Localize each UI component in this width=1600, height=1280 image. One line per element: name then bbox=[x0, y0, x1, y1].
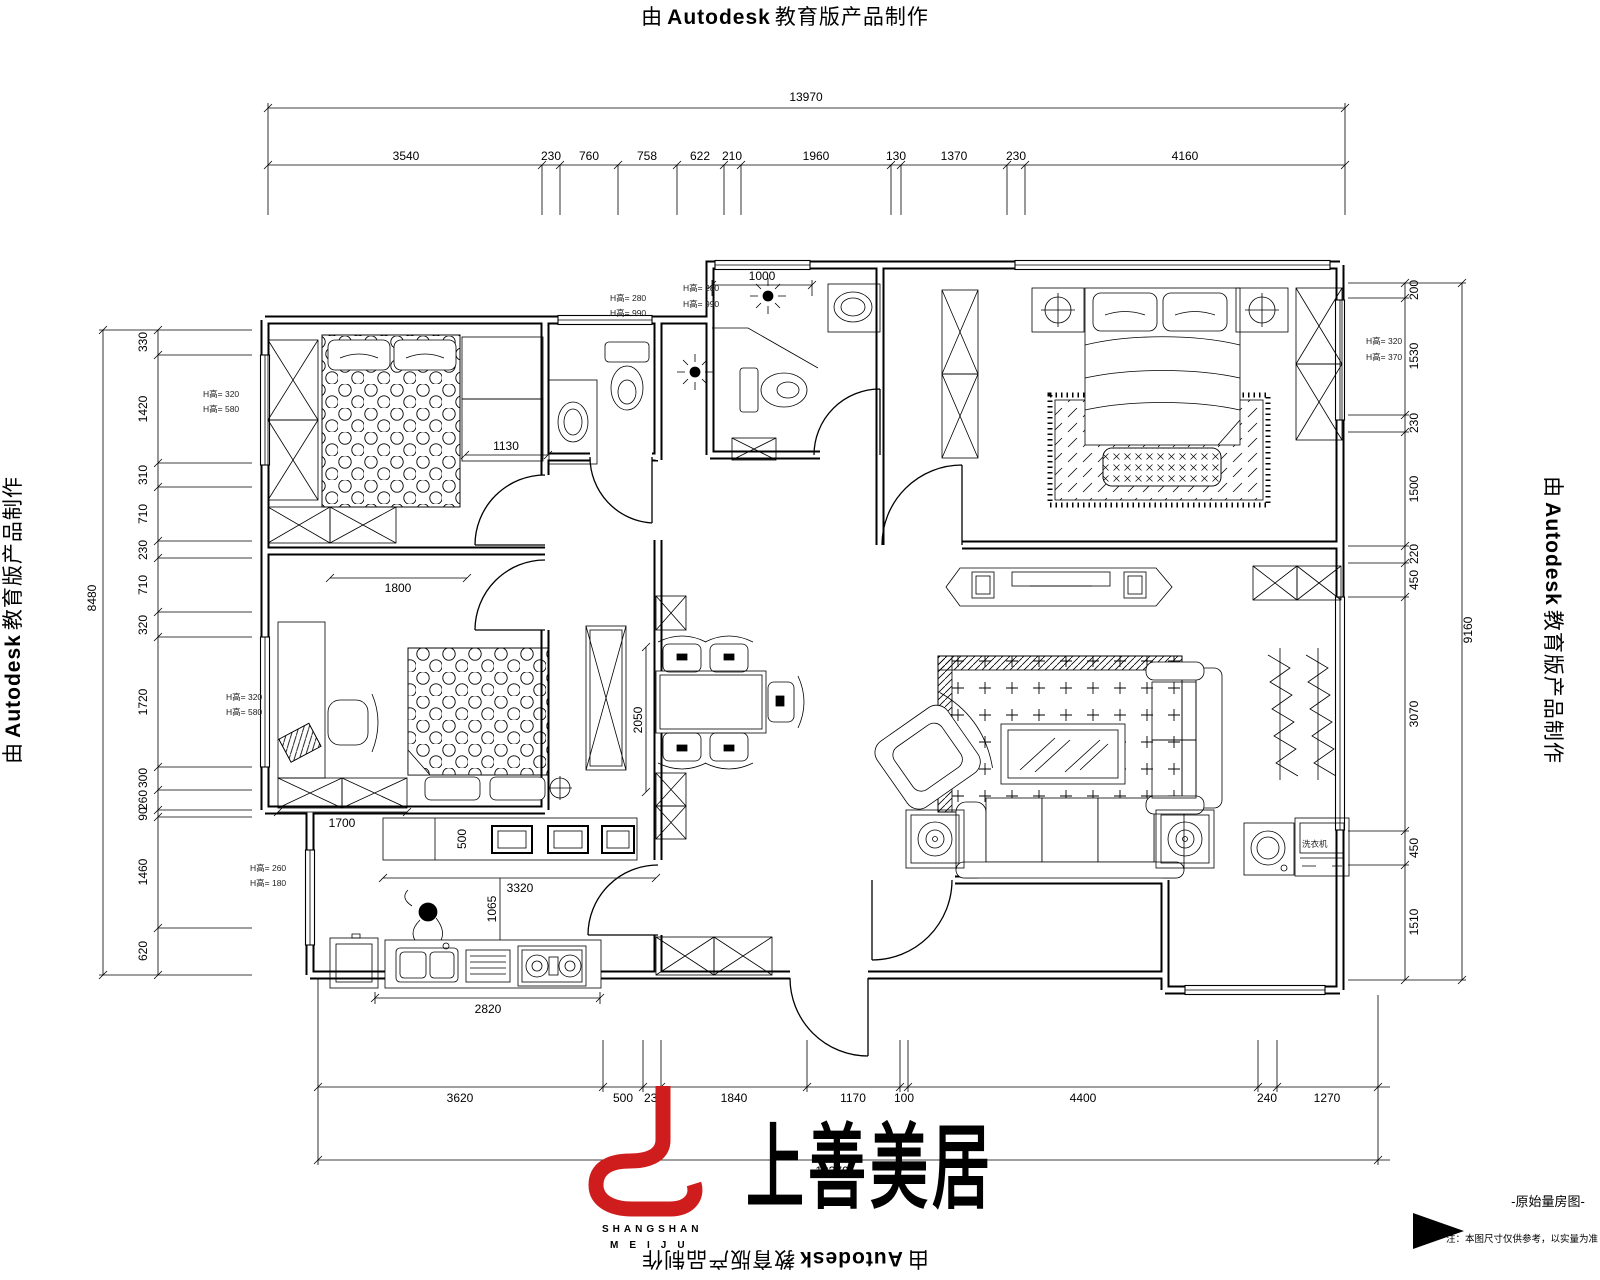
dim-label: 760 bbox=[579, 149, 599, 163]
washer-label: 洗衣机 bbox=[1302, 839, 1328, 849]
toilet bbox=[740, 368, 807, 412]
bedroom1 bbox=[322, 335, 543, 507]
door-bath1 bbox=[590, 457, 652, 523]
cabinet-bed1-bottom bbox=[268, 507, 396, 543]
door-entry bbox=[790, 978, 868, 1056]
dim-label: 758 bbox=[637, 149, 657, 163]
dim-label: 1510 bbox=[1407, 908, 1421, 935]
bath1 bbox=[549, 342, 649, 464]
brand-logo: 上善美居 SHANGSHAN MEIJU bbox=[596, 1086, 994, 1251]
door-bath2 bbox=[814, 389, 880, 455]
dim-chain-left: 8480 330 1420 310 710 230 710 320 1720 3… bbox=[85, 326, 252, 979]
dim-total-left: 8480 bbox=[85, 584, 99, 611]
window-note: H高= 320 bbox=[203, 389, 239, 399]
dim-label: 300 bbox=[136, 768, 150, 788]
bed-master bbox=[1085, 288, 1240, 445]
dim-label: 1130 bbox=[493, 439, 519, 453]
desk-chair bbox=[328, 694, 378, 752]
logo-en1: SHANGSHAN bbox=[602, 1224, 702, 1235]
dim-label: 620 bbox=[136, 941, 150, 961]
dim-label: 4400 bbox=[1070, 1091, 1097, 1105]
door-bedroom2 bbox=[475, 560, 545, 630]
dining bbox=[548, 636, 804, 800]
ceiling-lamps bbox=[677, 278, 786, 390]
faucet-figure bbox=[405, 890, 443, 948]
dim-label: 90 bbox=[136, 807, 150, 821]
dim-chain-right: 9160 200 1530 230 1500 220 450 3070 450 … bbox=[1348, 279, 1475, 984]
door-kitchen bbox=[588, 865, 658, 935]
chair bbox=[705, 733, 753, 769]
window-note: H高= 370 bbox=[1366, 352, 1402, 362]
plan-note: 注：本图尺寸仅供参考，以实量为准 bbox=[1446, 1233, 1599, 1245]
dim-label: 1370 bbox=[941, 149, 968, 163]
cabinet-bed2-bottom bbox=[278, 778, 407, 808]
dim-label: 710 bbox=[136, 504, 150, 524]
dim-label: 230 bbox=[541, 149, 561, 163]
dim-label: 220 bbox=[1407, 544, 1421, 564]
dim-label: 710 bbox=[136, 575, 150, 595]
nightstand-right bbox=[1236, 288, 1288, 332]
window-kitchen-left bbox=[306, 850, 315, 945]
dim-label: 1720 bbox=[136, 688, 150, 715]
master-bedroom bbox=[1032, 288, 1288, 505]
dim-label: 230 bbox=[136, 540, 150, 560]
upper-cabinet bbox=[383, 818, 637, 860]
dim-label: 3320 bbox=[507, 881, 534, 895]
dim-label: 310 bbox=[136, 465, 150, 485]
window-bed2-left bbox=[261, 637, 270, 767]
dim-label: 100 bbox=[894, 1091, 914, 1105]
chair bbox=[705, 636, 753, 672]
dim-label: 1700 bbox=[329, 816, 356, 830]
wardrobe-bed1 bbox=[268, 340, 318, 500]
dim-label: 1170 bbox=[840, 1091, 866, 1105]
dim-label: 1800 bbox=[385, 581, 412, 595]
footer-notes: -原始量房图- 注：本图尺寸仅供参考，以实量为准 bbox=[1413, 1194, 1598, 1249]
tv bbox=[1012, 572, 1110, 586]
window-note: H高= 990 bbox=[683, 299, 719, 309]
bench bbox=[425, 777, 480, 800]
bench bbox=[490, 777, 545, 800]
chair bbox=[658, 636, 706, 672]
window-balcony-bottom bbox=[1185, 986, 1325, 995]
floor-drain bbox=[548, 776, 572, 800]
dim-label: 500 bbox=[455, 829, 469, 849]
dim-label: 1270 bbox=[1314, 1091, 1341, 1105]
dim-label: 1840 bbox=[721, 1091, 748, 1105]
tv-unit bbox=[946, 568, 1172, 606]
door-bedroom1 bbox=[475, 475, 545, 545]
dim-label: 1530 bbox=[1407, 342, 1421, 369]
bedroom2 bbox=[278, 622, 548, 800]
dim-label: 1065 bbox=[485, 895, 499, 922]
dim-label: 230 bbox=[1407, 413, 1421, 433]
dim-label: 260 bbox=[136, 790, 150, 810]
coffee-table bbox=[1001, 724, 1125, 784]
basin bbox=[558, 402, 588, 442]
window-living-right bbox=[1336, 597, 1345, 830]
cabinet-entry bbox=[656, 937, 772, 975]
pillow bbox=[328, 340, 390, 370]
window-note: H高= 280 bbox=[610, 293, 646, 303]
logo-cn: 上善美居 bbox=[746, 1117, 994, 1220]
window-note: H高= 260 bbox=[250, 863, 286, 873]
basin bbox=[834, 292, 872, 322]
window-note: H高= 990 bbox=[610, 308, 646, 318]
lamp-star bbox=[750, 278, 786, 314]
dim-label: 3620 bbox=[447, 1091, 474, 1105]
plan-title: -原始量房图- bbox=[1511, 1194, 1585, 1209]
closet-bed1 bbox=[462, 337, 543, 399]
dim-chain-top: 13970 3540 230 760 758 622 210 1960 130 … bbox=[264, 90, 1349, 215]
dim-label: 200 bbox=[1407, 280, 1421, 300]
laptop bbox=[279, 723, 321, 762]
shower-partition bbox=[712, 328, 818, 368]
cabinet-living-topright bbox=[1253, 566, 1341, 600]
dim-label: 4160 bbox=[1172, 149, 1199, 163]
dim-total-right: 9160 bbox=[1461, 616, 1475, 643]
floor-plan-drawing: 13970 3540 230 760 758 622 210 1960 130 … bbox=[0, 0, 1600, 1280]
window-note: H高= 320 bbox=[1366, 336, 1402, 346]
window-note: H高= 320 bbox=[226, 692, 262, 702]
utility-sink bbox=[1244, 823, 1294, 875]
cabinet-master-left bbox=[942, 290, 978, 458]
chair bbox=[768, 676, 804, 728]
dim-label: 320 bbox=[136, 615, 150, 635]
dim-label: 1460 bbox=[136, 858, 150, 885]
kitchen bbox=[330, 818, 637, 988]
dim-label: 210 bbox=[722, 149, 742, 163]
bath2 bbox=[712, 284, 880, 412]
logo-mark bbox=[596, 1140, 695, 1209]
dim-label: 3540 bbox=[393, 149, 420, 163]
dim-label: 450 bbox=[1407, 570, 1421, 590]
floor-plan-sheet: 由Autodesk教育版产品制作 由Autodesk教育版产品制作 由Autod… bbox=[0, 0, 1600, 1280]
window-note: H高= 580 bbox=[203, 404, 239, 414]
window-note: H高= 580 bbox=[226, 707, 262, 717]
dim-label: 330 bbox=[136, 332, 150, 352]
door-master bbox=[882, 465, 962, 545]
dim-label: 230 bbox=[1006, 149, 1026, 163]
logo-en2: MEIJU bbox=[610, 1240, 696, 1251]
dim-label: 2050 bbox=[631, 706, 645, 733]
dim-label: 240 bbox=[1257, 1091, 1277, 1105]
nightstand-left bbox=[1032, 288, 1084, 332]
dim-label: 130 bbox=[886, 149, 906, 163]
dim-label: 3070 bbox=[1407, 700, 1421, 727]
door-passage bbox=[872, 880, 952, 960]
counter bbox=[385, 940, 601, 988]
side-table-plant bbox=[906, 810, 964, 868]
dim-label: 1420 bbox=[136, 395, 150, 422]
dim-label: 500 bbox=[613, 1091, 633, 1105]
dim-label: 1960 bbox=[803, 149, 830, 163]
cabinet-tall bbox=[586, 626, 626, 770]
bed2 bbox=[408, 648, 548, 775]
chair bbox=[658, 733, 706, 769]
toilet bbox=[605, 342, 649, 410]
dim-label: 622 bbox=[690, 149, 710, 163]
window-note: H高= 180 bbox=[250, 878, 286, 888]
dining-table bbox=[656, 671, 766, 733]
plant-rack bbox=[1268, 648, 1336, 780]
dim-label: 450 bbox=[1407, 838, 1421, 858]
dim-label: 1500 bbox=[1407, 475, 1421, 502]
dim-label: 1000 bbox=[749, 269, 776, 283]
dim-label: 2820 bbox=[475, 1002, 502, 1016]
window-master-top bbox=[1015, 261, 1330, 270]
dim-total-top: 13970 bbox=[789, 90, 823, 104]
basin-counter bbox=[549, 380, 597, 464]
fridge bbox=[330, 934, 378, 988]
window-note: H高= 280 bbox=[683, 283, 719, 293]
pillow bbox=[394, 340, 456, 370]
living-room bbox=[866, 568, 1349, 878]
